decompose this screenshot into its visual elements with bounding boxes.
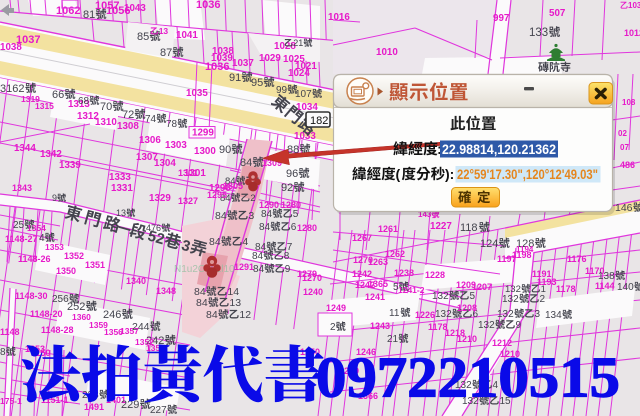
svg-text:91: 91: [229, 72, 241, 84]
svg-text:15: 15: [500, 396, 512, 407]
svg-text:1344: 1344: [14, 143, 36, 154]
svg-text:13: 13: [159, 26, 169, 36]
svg-text:84: 84: [253, 264, 265, 275]
svg-text:1036: 1036: [196, 0, 220, 11]
svg-text:81: 81: [83, 9, 95, 21]
svg-text:1331: 1331: [111, 183, 133, 194]
svg-text:1310: 1310: [95, 117, 117, 128]
svg-text:13: 13: [116, 208, 126, 218]
svg-text:1241: 1241: [365, 292, 385, 302]
svg-text:1352: 1352: [64, 251, 84, 261]
svg-text:84: 84: [252, 251, 264, 262]
svg-text:95: 95: [251, 77, 263, 89]
svg-text:21: 21: [387, 334, 399, 345]
svg-text:1333: 1333: [109, 172, 131, 183]
svg-text:1037: 1037: [232, 58, 254, 69]
svg-text:507: 507: [549, 8, 566, 19]
svg-text:6: 6: [291, 222, 297, 233]
svg-text:997: 997: [493, 13, 510, 24]
svg-text:1228: 1228: [425, 270, 445, 280]
svg-text:3: 3: [535, 309, 541, 320]
svg-text:1038: 1038: [212, 46, 234, 57]
svg-text:2: 2: [330, 322, 336, 333]
svg-text:96: 96: [286, 168, 298, 180]
svg-text:9: 9: [516, 320, 522, 331]
svg-text:1241-2: 1241-2: [398, 285, 425, 295]
svg-text:1226: 1226: [415, 310, 435, 320]
svg-text:1327: 1327: [178, 196, 198, 206]
svg-text:1295: 1295: [207, 190, 227, 200]
svg-text:1348: 1348: [156, 286, 176, 296]
svg-text:1304: 1304: [154, 158, 176, 169]
svg-text:1148-30: 1148-30: [15, 291, 48, 301]
svg-text:84: 84: [206, 309, 218, 321]
svg-text:1210: 1210: [457, 334, 477, 344]
svg-text:1148-27: 1148-27: [5, 234, 38, 244]
svg-text:92: 92: [281, 182, 293, 194]
svg-text:1016: 1016: [328, 12, 350, 23]
svg-text:07: 07: [620, 143, 629, 152]
svg-text:90: 90: [219, 144, 231, 156]
svg-text:3: 3: [248, 210, 254, 222]
svg-text:84: 84: [261, 209, 273, 220]
svg-text:1243: 1243: [370, 321, 390, 331]
svg-text:4: 4: [242, 236, 248, 248]
svg-text:8: 8: [0, 347, 6, 358]
svg-text:175-1: 175-1: [0, 396, 22, 406]
svg-text:118: 118: [460, 222, 478, 234]
svg-text:84: 84: [196, 297, 208, 309]
svg-text:1299: 1299: [192, 128, 214, 139]
svg-text:486: 486: [620, 160, 635, 170]
svg-text:1036: 1036: [205, 61, 229, 73]
svg-text:1242: 1242: [352, 269, 372, 279]
svg-text:2: 2: [250, 193, 255, 204]
svg-text:1267: 1267: [352, 233, 372, 243]
svg-text:1037: 1037: [16, 34, 40, 46]
svg-text:108: 108: [622, 98, 636, 107]
svg-text:1491: 1491: [84, 402, 104, 412]
svg-text:1148-28: 1148-28: [41, 325, 74, 335]
svg-text:1354: 1354: [27, 223, 46, 233]
svg-text:1212: 1212: [492, 338, 512, 348]
svg-text:1353: 1353: [45, 242, 64, 252]
svg-text:99: 99: [276, 85, 288, 96]
svg-text:21: 21: [293, 38, 303, 48]
svg-text:1029: 1029: [259, 53, 281, 64]
svg-text:1035: 1035: [186, 88, 208, 99]
svg-text:1012: 1012: [624, 28, 640, 38]
svg-text:1024: 1024: [288, 68, 310, 79]
svg-text:1148: 1148: [0, 327, 20, 337]
svg-text:25: 25: [13, 220, 25, 231]
svg-text:2: 2: [540, 294, 546, 305]
svg-text:132: 132: [478, 320, 495, 331]
svg-text:(: (: [396, 166, 401, 182]
svg-text:13: 13: [229, 297, 241, 309]
svg-text:1246: 1246: [356, 347, 376, 357]
svg-text:1056: 1056: [106, 5, 130, 17]
svg-text:5: 5: [293, 209, 299, 220]
svg-text:9: 9: [285, 264, 291, 275]
svg-text:乙1038: 乙1038: [620, 1, 640, 10]
svg-text:):: ):: [445, 166, 454, 182]
svg-text:1270: 1270: [302, 273, 322, 283]
svg-text:132: 132: [502, 294, 519, 305]
svg-text:84: 84: [240, 157, 252, 169]
svg-text:5: 5: [470, 291, 476, 302]
svg-text:1238: 1238: [394, 268, 414, 278]
svg-text:1010: 1010: [376, 47, 398, 58]
svg-text:132: 132: [432, 291, 449, 302]
svg-text:1249: 1249: [326, 303, 346, 313]
svg-text:476: 476: [146, 223, 161, 233]
svg-text:1350: 1350: [56, 266, 76, 276]
svg-text:1263: 1263: [368, 257, 388, 267]
svg-text:1227: 1227: [430, 221, 452, 232]
svg-text:4: 4: [493, 380, 499, 391]
svg-text:132: 132: [497, 309, 514, 320]
svg-text:72: 72: [122, 109, 134, 121]
svg-text:84: 84: [259, 222, 271, 233]
svg-text:02: 02: [618, 129, 627, 138]
svg-text:8: 8: [284, 251, 290, 262]
svg-text:227: 227: [150, 405, 167, 416]
svg-text:1176: 1176: [567, 254, 587, 264]
svg-text:1300: 1300: [194, 146, 216, 157]
svg-text:1306: 1306: [139, 135, 161, 146]
svg-text:1339: 1339: [59, 160, 81, 171]
svg-text:1303: 1303: [165, 140, 187, 151]
svg-text:132: 132: [435, 309, 452, 320]
svg-text:1144: 1144: [595, 281, 615, 291]
svg-text:244: 244: [132, 321, 150, 333]
svg-text:1194: 1194: [516, 245, 534, 254]
svg-text:133: 133: [529, 27, 548, 39]
svg-text:68: 68: [78, 96, 90, 107]
svg-text:70: 70: [100, 101, 112, 113]
svg-text:132: 132: [462, 396, 479, 407]
svg-text:146: 146: [615, 202, 633, 214]
svg-text:140: 140: [617, 282, 634, 293]
svg-text:1291: 1291: [234, 262, 254, 272]
svg-text:182: 182: [310, 115, 328, 127]
svg-text:1308: 1308: [117, 121, 139, 132]
svg-text:1340: 1340: [126, 276, 146, 286]
svg-text:1280: 1280: [297, 223, 317, 233]
svg-text:1148-20: 1148-20: [30, 309, 63, 319]
svg-text:1319: 1319: [21, 94, 40, 104]
svg-text:1148-26: 1148-26: [18, 254, 51, 264]
svg-text:84: 84: [215, 210, 227, 222]
svg-text:9: 9: [52, 193, 57, 203]
svg-text:1178: 1178: [556, 284, 576, 294]
svg-text:132: 132: [455, 380, 472, 391]
svg-text:1329: 1329: [149, 193, 171, 204]
svg-text:85: 85: [137, 31, 149, 43]
svg-text:1301: 1301: [178, 168, 198, 178]
svg-text:1342: 1342: [40, 149, 62, 160]
svg-text:1365: 1365: [368, 279, 388, 289]
svg-text:1240: 1240: [303, 287, 323, 297]
svg-text:107: 107: [295, 89, 312, 100]
svg-text:66: 66: [52, 89, 64, 101]
svg-text:1208: 1208: [457, 303, 477, 313]
svg-text:22.98814,120.21362: 22.98814,120.21362: [442, 142, 556, 157]
svg-text:84: 84: [209, 236, 221, 248]
svg-text:11: 11: [389, 308, 400, 319]
svg-text:12: 12: [239, 309, 251, 321]
svg-text:134: 134: [545, 310, 562, 321]
svg-text:1343: 1343: [12, 183, 32, 193]
svg-text:1210: 1210: [500, 349, 520, 359]
svg-text:74: 74: [145, 114, 157, 125]
svg-text:87: 87: [160, 47, 172, 59]
svg-text:78: 78: [166, 119, 178, 130]
svg-text:1062: 1062: [56, 5, 80, 17]
svg-text:1041: 1041: [176, 30, 198, 41]
svg-text:1261: 1261: [378, 224, 398, 234]
svg-text:22°59'17.30",120°12'49.03": 22°59'17.30",120°12'49.03": [457, 167, 598, 182]
svg-text:1351: 1351: [85, 260, 105, 270]
svg-text:124: 124: [480, 238, 498, 250]
